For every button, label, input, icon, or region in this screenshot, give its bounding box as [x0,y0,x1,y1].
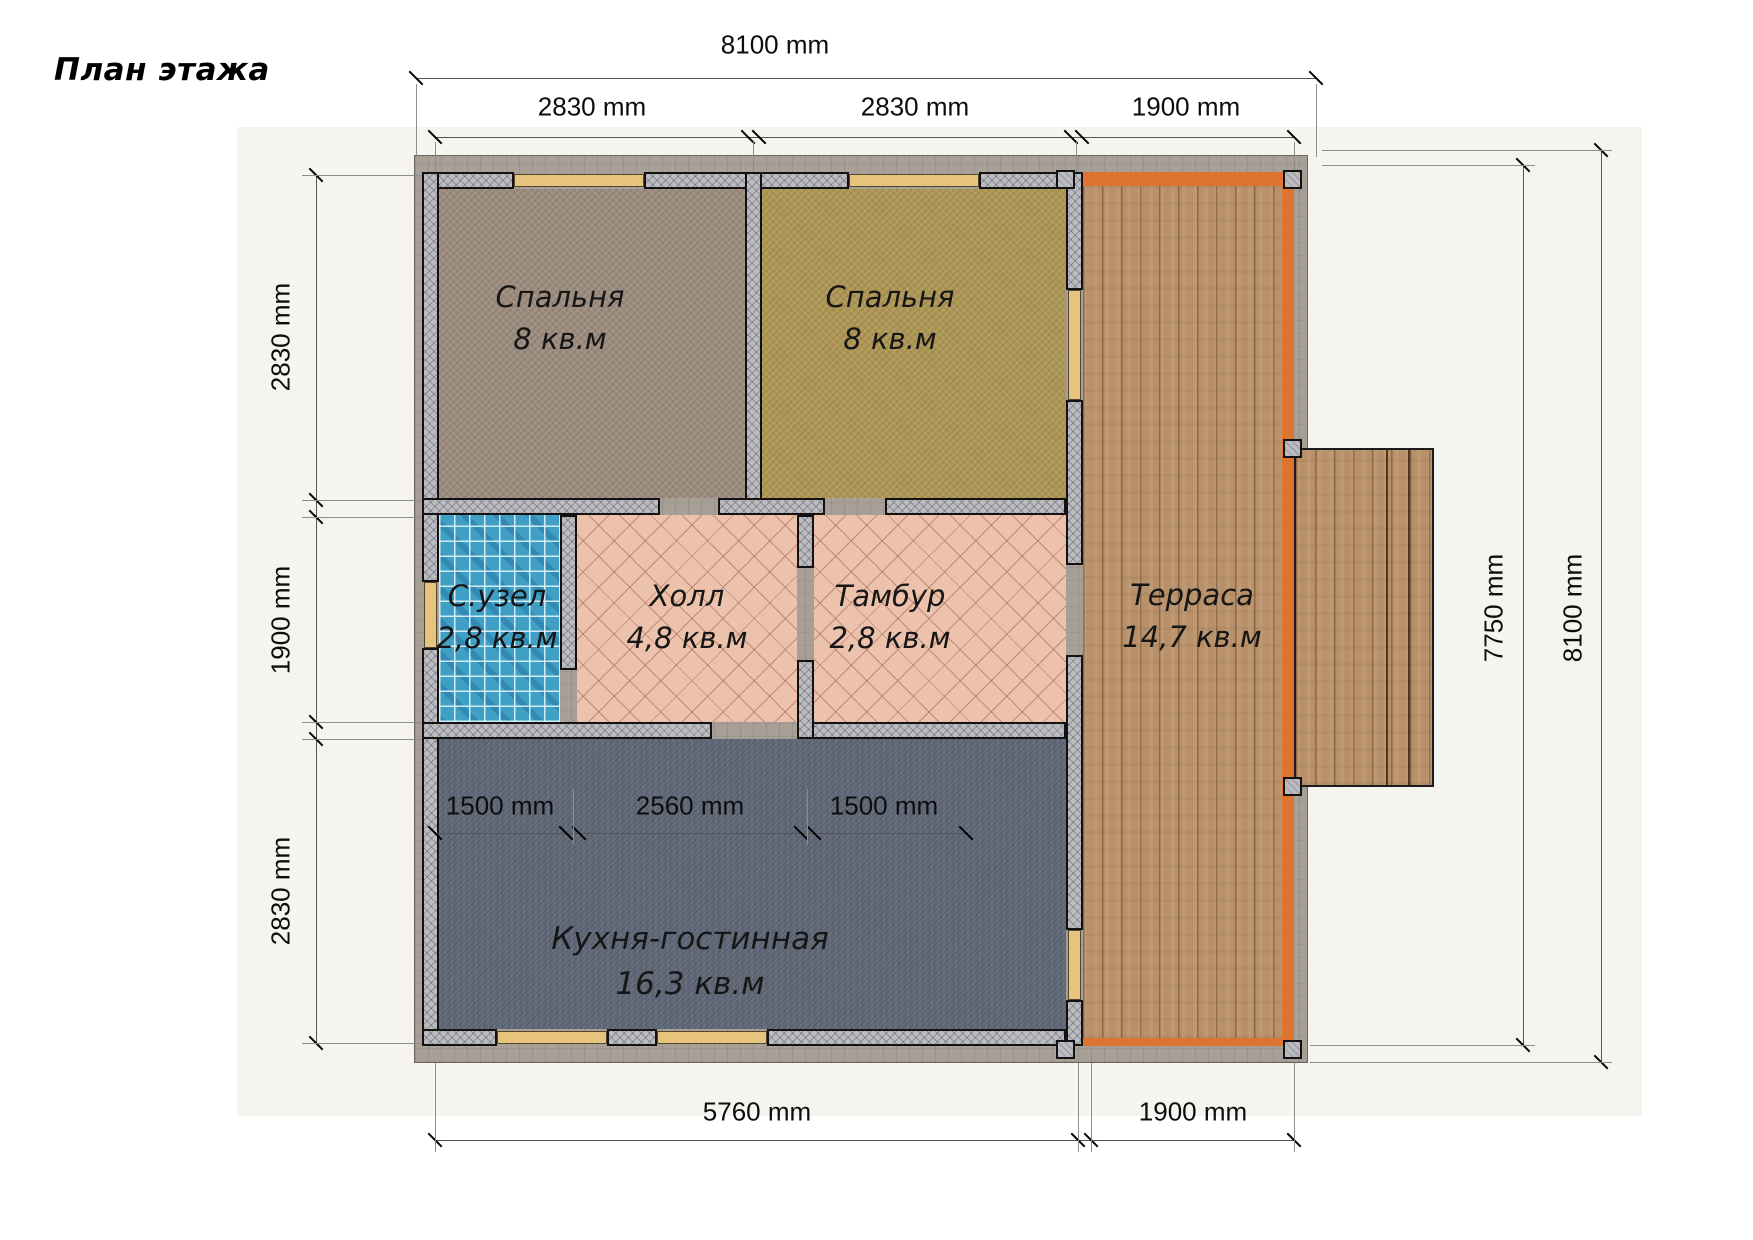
extension-line [1294,1063,1295,1152]
page-title: План этажа [54,52,270,88]
wall-bottom-a [422,1029,497,1046]
extension-line [302,500,422,501]
room-name: Тамбур [829,575,950,617]
wall-hall-kitchen-a [422,722,712,739]
porch-plank-line [1386,450,1388,785]
wall-hall-tambour-b [797,660,814,739]
dim-line-left [316,175,317,1043]
extension-line [1310,1045,1535,1046]
dim-line-kitchen [435,833,966,834]
extension-line [1078,1063,1079,1152]
dim-label-top-1: 2830 mm [538,92,646,123]
terrace-post [1283,1040,1302,1059]
wall-east-c [1066,655,1083,930]
porch-deck [1294,448,1434,787]
wall-bathroom-east [560,515,577,670]
terrace-post [1283,170,1302,189]
wall-bottom-c [767,1029,1066,1046]
terrace-edge-top [1083,172,1294,186]
terrace-edge-right [1282,172,1294,1046]
window-bedroom-2 [849,174,979,187]
wall-east-a [1066,172,1083,290]
dim-line-bottom [435,1140,1294,1141]
room-label-tambour: Тамбур 2,8 кв.м [829,575,950,659]
extension-line [1322,150,1612,151]
dim-label-right-total: 8100 mm [1558,554,1589,662]
window-kitchen-east [1068,930,1081,1000]
terrace-post [1283,777,1302,796]
wall-hall-tambour-a [797,515,814,568]
extension-line [1316,84,1317,157]
extension-line [1310,1062,1612,1063]
wall-bedrooms-hall-b [718,498,825,515]
extension-line [753,142,754,174]
room-area: 2,8 кв.м [829,617,950,659]
room-area: 8 кв.м [495,318,624,360]
room-area: 8 кв.м [825,318,954,360]
extension-line [302,175,422,176]
room-label-terrace: Терраса 14,7 кв.м [1122,574,1262,658]
wall-hall-kitchen-b [798,722,1066,739]
wall-left-a [422,172,439,582]
wall-bottom-b [607,1029,657,1046]
wall-bedrooms-divider [745,172,762,515]
dim-line-right-inner [1523,165,1524,1045]
dim-line-top-segments [435,137,1294,138]
terrace-post [1056,170,1075,189]
room-area: 2,8 кв.м [436,617,557,659]
room-area: 16,3 кв.м [551,962,829,1007]
extension-line [435,142,436,174]
extension-line [302,1043,422,1044]
window-kitchen-2 [657,1031,767,1044]
wall-left-b [422,648,439,1046]
room-area: 4,8 кв.м [626,617,747,659]
terrace-post [1056,1040,1075,1059]
dim-label-left-3: 2830 mm [266,837,297,945]
room-label-hall: Холл 4,8 кв.м [626,575,747,659]
room-name: С.узел [436,575,557,617]
dim-label-right-inner: 7750 mm [1479,554,1510,662]
room-name: Спальня [825,276,954,318]
dim-label-left-2: 1900 mm [266,566,297,674]
extension-line [302,517,422,518]
wall-top-c [979,172,1066,189]
dim-label-top-3: 1900 mm [1132,92,1240,123]
window-bedroom-2-east [1068,290,1081,400]
wall-bedrooms-hall-a [422,498,660,515]
dim-label-kitchen-3: 1500 mm [830,791,938,822]
dim-line-top-total [416,78,1316,79]
extension-line [416,84,417,157]
room-label-bedroom-1: Спальня 8 кв.м [495,276,624,360]
dim-label-top-total: 8100 mm [721,30,829,61]
window-bedroom-1 [514,174,644,187]
wall-bedrooms-hall-c [885,498,1066,515]
wall-east-b [1066,400,1083,565]
extension-line [302,739,422,740]
terrace-post [1283,439,1302,458]
room-name: Кухня-гостинная [551,917,829,962]
dim-label-kitchen-1: 1500 mm [446,791,554,822]
room-label-kitchen: Кухня-гостинная 16,3 кв.м [551,917,829,1007]
dim-label-kitchen-2: 2560 mm [636,791,744,822]
window-kitchen-1 [497,1031,607,1044]
dim-label-top-2: 2830 mm [861,92,969,123]
room-name: Спальня [495,276,624,318]
terrace-edge-bottom [1083,1038,1282,1046]
extension-line [1091,1063,1092,1152]
dim-label-left-1: 2830 mm [266,283,297,391]
room-label-bedroom-2: Спальня 8 кв.м [825,276,954,360]
extension-line [435,1063,436,1152]
extension-line [807,789,808,845]
room-label-bathroom: С.узел 2,8 кв.м [436,575,557,659]
dim-label-bottom-2: 1900 mm [1139,1097,1247,1128]
dim-line-right-total [1601,150,1602,1062]
window-bathroom [424,582,437,648]
dim-label-bottom-1: 5760 mm [703,1097,811,1128]
extension-line [1322,165,1535,166]
porch-plank-line [1408,450,1410,785]
room-name: Терраса [1122,574,1262,616]
extension-line [302,722,422,723]
extension-line [573,789,574,845]
room-name: Холл [626,575,747,617]
room-area: 14,7 кв.м [1122,616,1262,658]
